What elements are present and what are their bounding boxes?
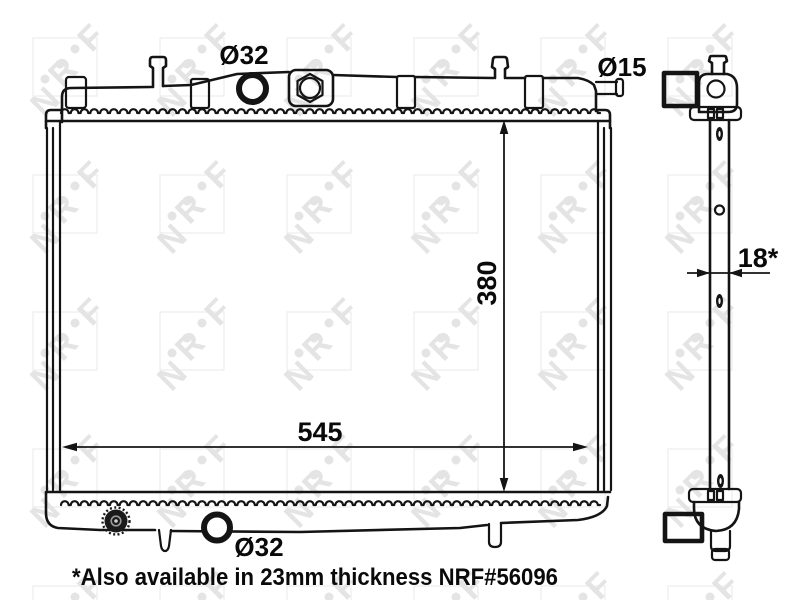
nrf-watermark-tile: NRF — [531, 154, 620, 261]
nrf-watermark-tile: NRF — [658, 565, 747, 600]
bottom-pipe-ring — [204, 515, 230, 541]
filler-neck-ring — [239, 75, 266, 102]
label-filler-diameter: Ø32 — [219, 40, 268, 70]
radiator-technical-drawing: NRFNRFNRFNRFNRFNRFNRFNRFNRFNRFNRFNRFNRFN… — [0, 0, 794, 600]
label-core-height: 380 — [472, 260, 502, 305]
bottom-stub-mid — [489, 523, 501, 547]
label-core-width: 545 — [297, 417, 342, 447]
nrf-watermark-tile: NRF — [658, 291, 747, 398]
nrf-watermark-pattern: NRFNRFNRFNRFNRFNRFNRFNRFNRFNRFNRFNRFNRFN… — [23, 17, 747, 600]
nrf-watermark-tile: NRF — [277, 154, 366, 261]
top-crimp-serration — [61, 109, 600, 113]
side-filler-circle — [708, 81, 725, 98]
label-thickness: 18* — [738, 243, 779, 273]
top-tank-outline — [62, 87, 151, 122]
nrf-watermark-tile: NRF — [23, 154, 112, 261]
footnote-text: *Also available in 23mm thickness NRF#56… — [72, 564, 558, 591]
side-plate-left — [47, 121, 60, 490]
nrf-watermark-tile: NRF — [404, 291, 493, 398]
nrf-watermark-tile: NRF — [23, 428, 112, 535]
top-tank-edge-right2 — [415, 77, 493, 78]
nrf-watermark-tile: NRF — [404, 154, 493, 261]
nrf-watermark-tile: NRF — [150, 154, 239, 261]
bleed-nozzle-left — [150, 57, 166, 87]
nrf-watermark-tile: NRF — [531, 291, 620, 398]
side-flange-tab4 — [717, 491, 723, 500]
nrf-watermark-tile: NRF — [658, 154, 747, 261]
bottom-crimp-serration — [61, 501, 600, 505]
nrf-watermark-tile: NRF — [23, 291, 112, 398]
bottom-stub-left — [159, 530, 171, 551]
label-bottom-pipe-diameter: Ø32 — [234, 532, 283, 562]
side-top-stub — [709, 56, 727, 74]
side-flange-tab1 — [708, 109, 714, 118]
drawing-canvas: NRFNRFNRFNRFNRFNRFNRFNRFNRFNRFNRFNRFNRFN… — [0, 0, 794, 600]
dimension-annotations: 545 380 18* Ø32 Ø15 Ø32 — [62, 40, 779, 562]
nrf-watermark-tile: NRF — [404, 428, 493, 535]
drain-plug — [103, 508, 130, 535]
nrf-watermark-tile: NRF — [277, 291, 366, 398]
top-tank-edge-right — [333, 75, 397, 77]
bleed-nozzle-right — [492, 57, 508, 78]
side-flange-tab2 — [717, 109, 723, 118]
nrf-watermark-tile: NRF — [150, 291, 239, 398]
label-outlet-diameter: Ø15 — [597, 52, 646, 82]
